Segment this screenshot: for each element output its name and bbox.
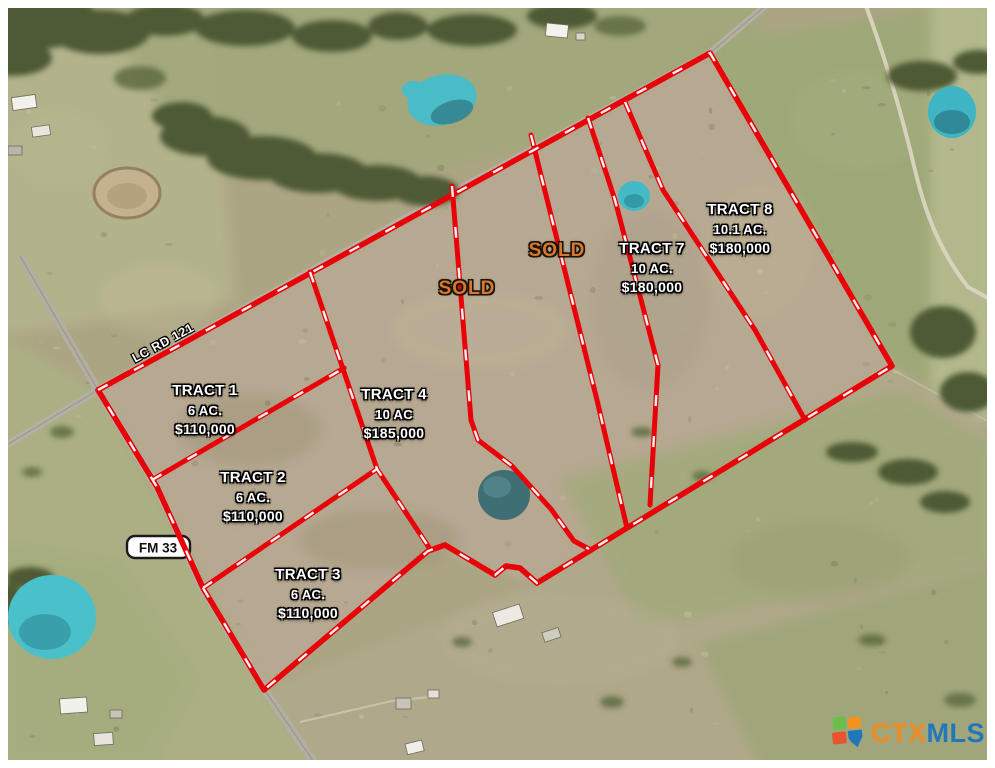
pond-tract7 <box>618 181 650 211</box>
terrain-fields <box>0 0 995 768</box>
listing-map-screenshot: FM 33 TRACT 1 6 AC. <box>0 0 995 768</box>
logo-text-mls: MLS <box>927 720 986 747</box>
fm-road-shield-label: FM 33 <box>139 541 178 556</box>
pond-top-right <box>928 86 976 138</box>
logo-text-ctx: CTX <box>871 720 927 747</box>
stock-tank-upper-left <box>94 168 160 218</box>
ctxmls-texas-icon <box>828 714 868 752</box>
pond-bottom-left <box>8 575 96 659</box>
aerial-map: FM 33 <box>0 0 995 768</box>
ctxmls-logo: CTXMLS <box>828 714 985 752</box>
